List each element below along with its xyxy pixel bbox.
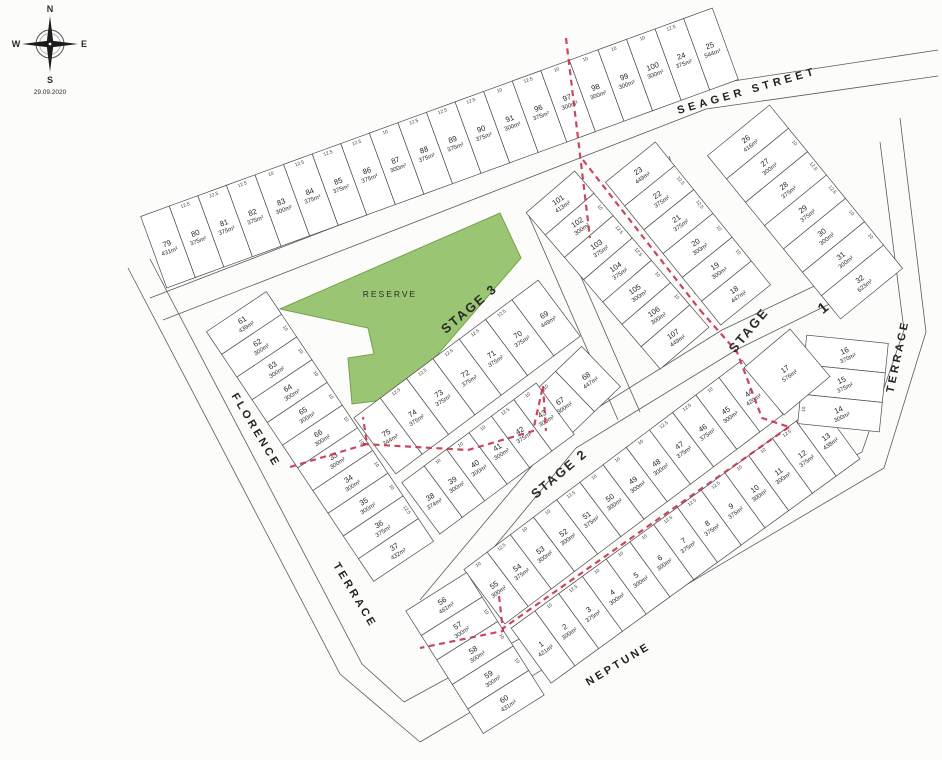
lot-parcels: 79431m²12.580375m²12.581375m²12.582375m²… [141, 8, 903, 733]
subdivision-plan-svg: 79431m²12.580375m²12.581375m²12.582375m²… [0, 0, 942, 760]
compass-rose: N E S W [12, 4, 87, 85]
compass-w: W [12, 39, 21, 49]
compass-e: E [81, 39, 87, 49]
subdivision-plan-page: 79431m²12.580375m²12.581375m²12.582375m²… [0, 0, 942, 760]
street-label-neptune-terrace: TERRACE [884, 319, 911, 394]
compass-n: N [47, 4, 54, 14]
compass-s: S [47, 75, 53, 85]
reserve-label: RESERVE [363, 289, 417, 299]
lot-frontage-dim: 10 [801, 406, 808, 412]
plan-date: 29.09.2020 [34, 89, 67, 96]
